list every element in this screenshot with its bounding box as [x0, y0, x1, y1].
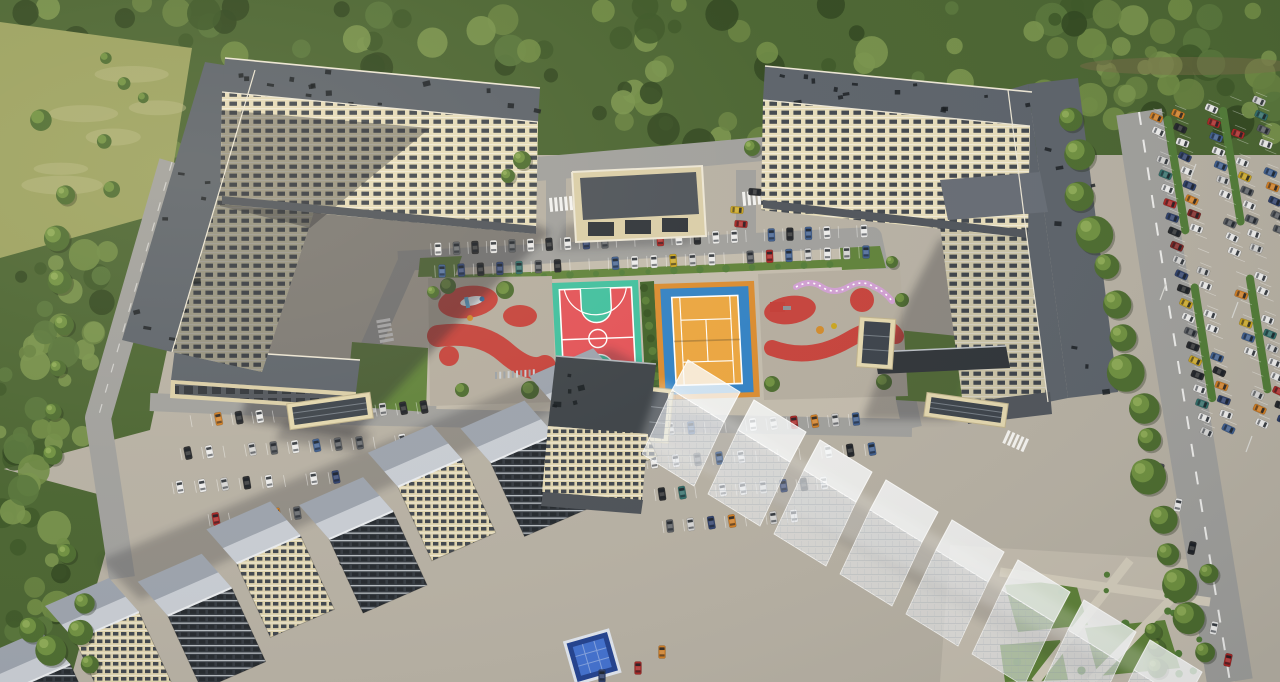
foreground-layer: [0, 0, 1280, 682]
residential-complex-render: Aerial 3D render of a residential comple…: [0, 0, 1280, 682]
aerial-render-image: Aerial 3D render of a residential comple…: [0, 0, 1280, 682]
